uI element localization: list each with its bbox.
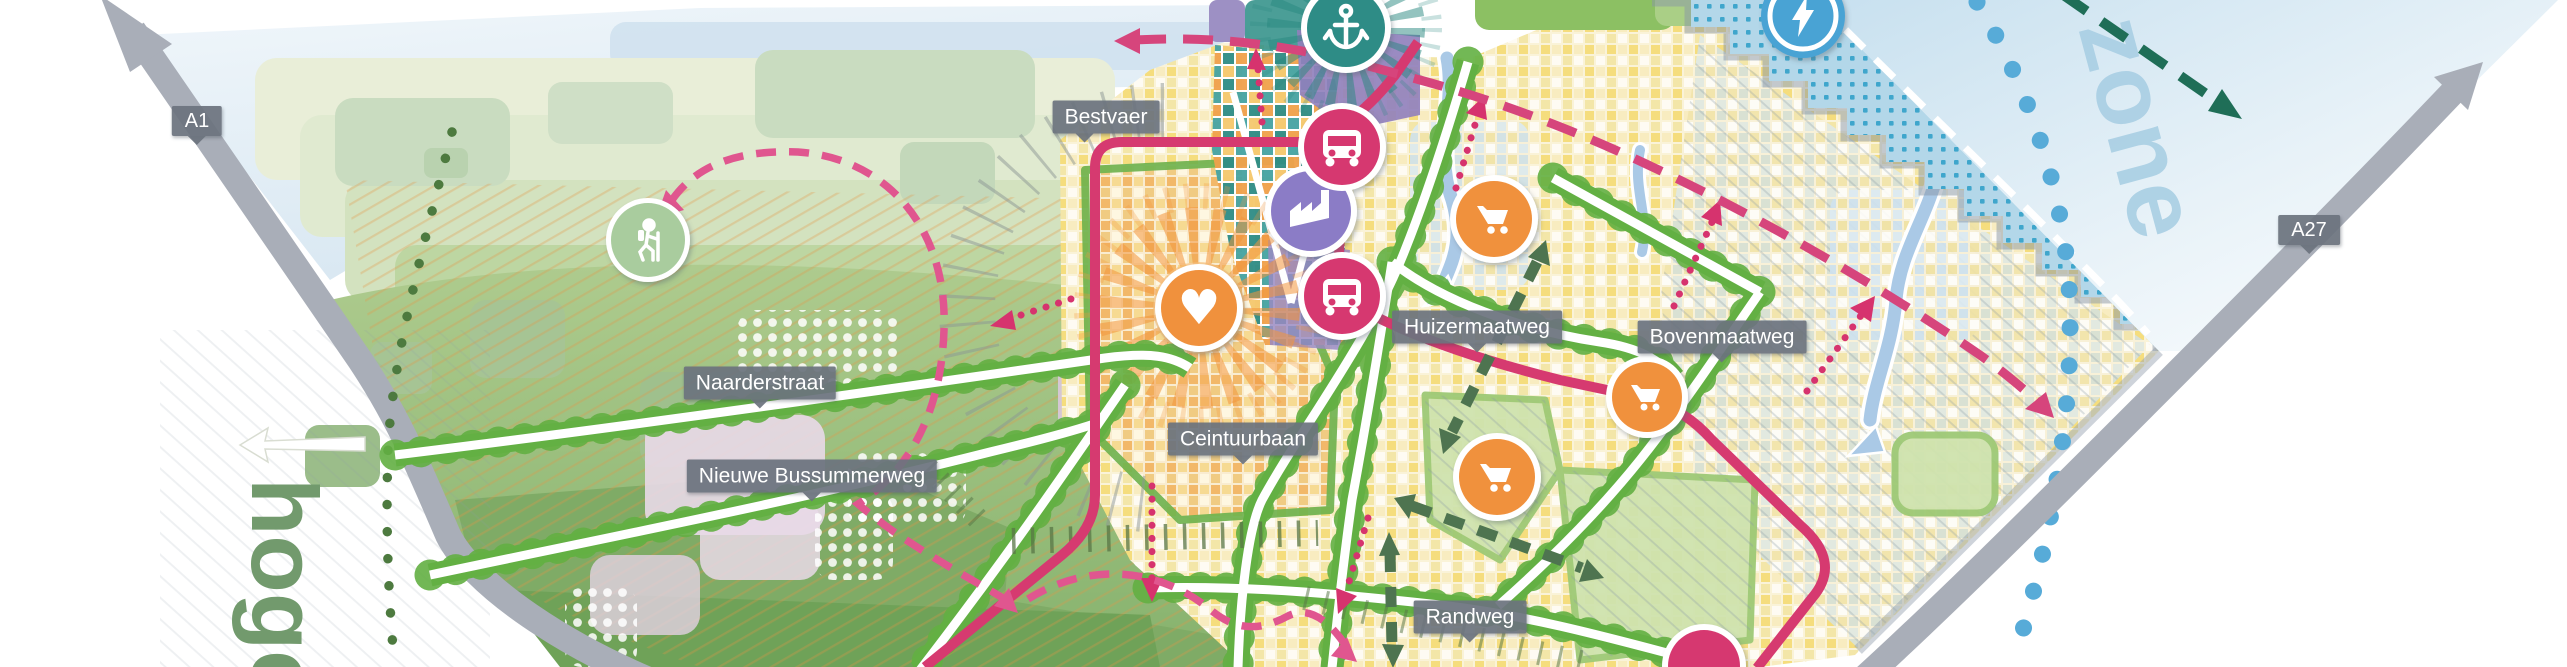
road-label-nieuwe-bussummerweg: Nieuwe Bussummerweg bbox=[687, 460, 937, 493]
heart-icon: ♥ bbox=[1155, 264, 1243, 352]
road-label-randweg: Randweg bbox=[1414, 601, 1527, 634]
road-label-naarderstraat: Naarderstraat bbox=[684, 367, 836, 400]
shopping-cart-icon bbox=[1450, 175, 1538, 263]
shopping-cart-icon bbox=[1453, 433, 1541, 521]
map-canvas: zone hoge bbox=[0, 0, 2567, 667]
road-label-bovenmaatweg: Bovenmaatweg bbox=[1638, 321, 1807, 354]
road-label-bestvaer: Bestvaer bbox=[1053, 101, 1160, 134]
bus-icon bbox=[1298, 252, 1386, 340]
svg-text:♥: ♥ bbox=[1177, 280, 1220, 336]
bus-icon bbox=[1298, 103, 1386, 191]
hiker-icon bbox=[606, 198, 690, 282]
shopping-cart-icon bbox=[1606, 356, 1688, 438]
highway-label-a27: A27 bbox=[2278, 215, 2340, 245]
road-label-ceintuurbaan: Ceintuurbaan bbox=[1168, 423, 1318, 456]
highway-label-a1: A1 bbox=[172, 106, 222, 136]
urban-plan-map: zone hoge bbox=[0, 0, 2567, 667]
hoge-text: hoge bbox=[232, 478, 337, 667]
road-label-huizermaatweg: Huizermaatweg bbox=[1392, 311, 1562, 344]
